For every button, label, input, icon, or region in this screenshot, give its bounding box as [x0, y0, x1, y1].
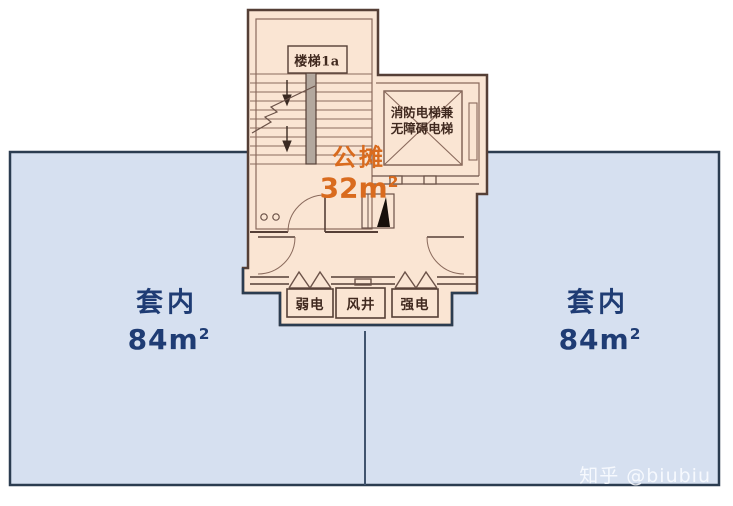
left-unit-area: 84m2	[128, 318, 211, 356]
right-unit-label: 套内	[567, 287, 629, 320]
strong-electric-label: 强电	[401, 293, 430, 313]
stair-label: 楼梯1a	[294, 51, 339, 70]
watermark: 知乎 @biubiu	[579, 461, 711, 488]
left-unit-label: 套内	[136, 287, 198, 320]
elevator-label: 消防电梯兼 无障碍电梯	[391, 105, 454, 137]
shared-area-label: 公摊	[332, 138, 386, 173]
weak-electric-label: 弱电	[296, 293, 325, 313]
air-shaft-label: 风井	[347, 293, 376, 313]
floorplan-diagram: 楼梯1a 消防电梯兼 无障碍电梯 公摊 32m2 套内 84m2 套内 84m2…	[0, 0, 733, 506]
floorplan-geometry	[0, 0, 733, 506]
right-unit-area: 84m2	[559, 318, 642, 356]
elevator-counterweight	[469, 103, 477, 160]
shared-area-value: 32m2	[320, 172, 399, 205]
